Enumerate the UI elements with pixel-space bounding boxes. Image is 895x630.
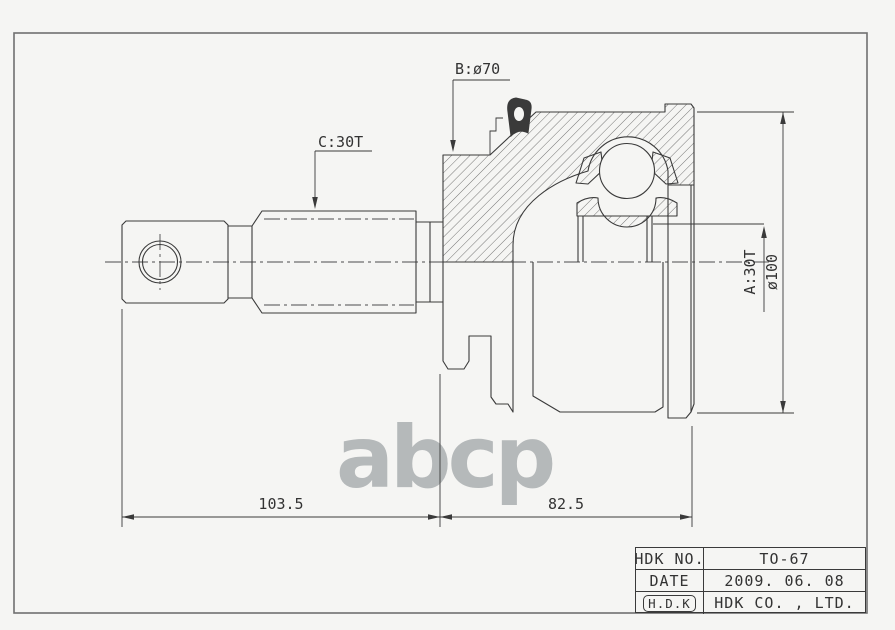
bearing-ball — [600, 144, 655, 199]
label-inner-spline: A:30T — [741, 249, 759, 294]
label-outer-spline: C:30T — [318, 133, 363, 151]
title-block-label-no: HDK NO. — [636, 548, 704, 570]
centerlines — [105, 219, 772, 305]
cage — [577, 198, 677, 227]
technical-drawing-svg: B:ø70 C:30T 103.5 82.5 A:30T ø100 — [0, 0, 895, 630]
title-block-value-company: HDK CO. , LTD. — [704, 592, 865, 614]
label-boot-diameter: B:ø70 — [455, 60, 500, 78]
title-block-logo-cell: H.D.K — [636, 592, 704, 614]
title-block-value-date: 2009. 06. 08 — [704, 570, 865, 592]
title-block-label-date: DATE — [636, 570, 704, 592]
label-outer-diameter: ø100 — [763, 254, 781, 290]
sheet-border — [14, 33, 867, 613]
title-block-value-no: TO-67 — [704, 548, 865, 570]
dim-shaft-length: 103.5 — [258, 495, 303, 513]
drawing-sheet: abcp — [0, 0, 895, 630]
dim-joint-length: 82.5 — [548, 495, 584, 513]
hdk-logo: H.D.K — [643, 595, 696, 612]
title-block: HDK NO. TO-67 DATE 2009. 06. 08 H.D.K HD… — [635, 547, 866, 613]
bell-housing-section — [443, 98, 694, 262]
